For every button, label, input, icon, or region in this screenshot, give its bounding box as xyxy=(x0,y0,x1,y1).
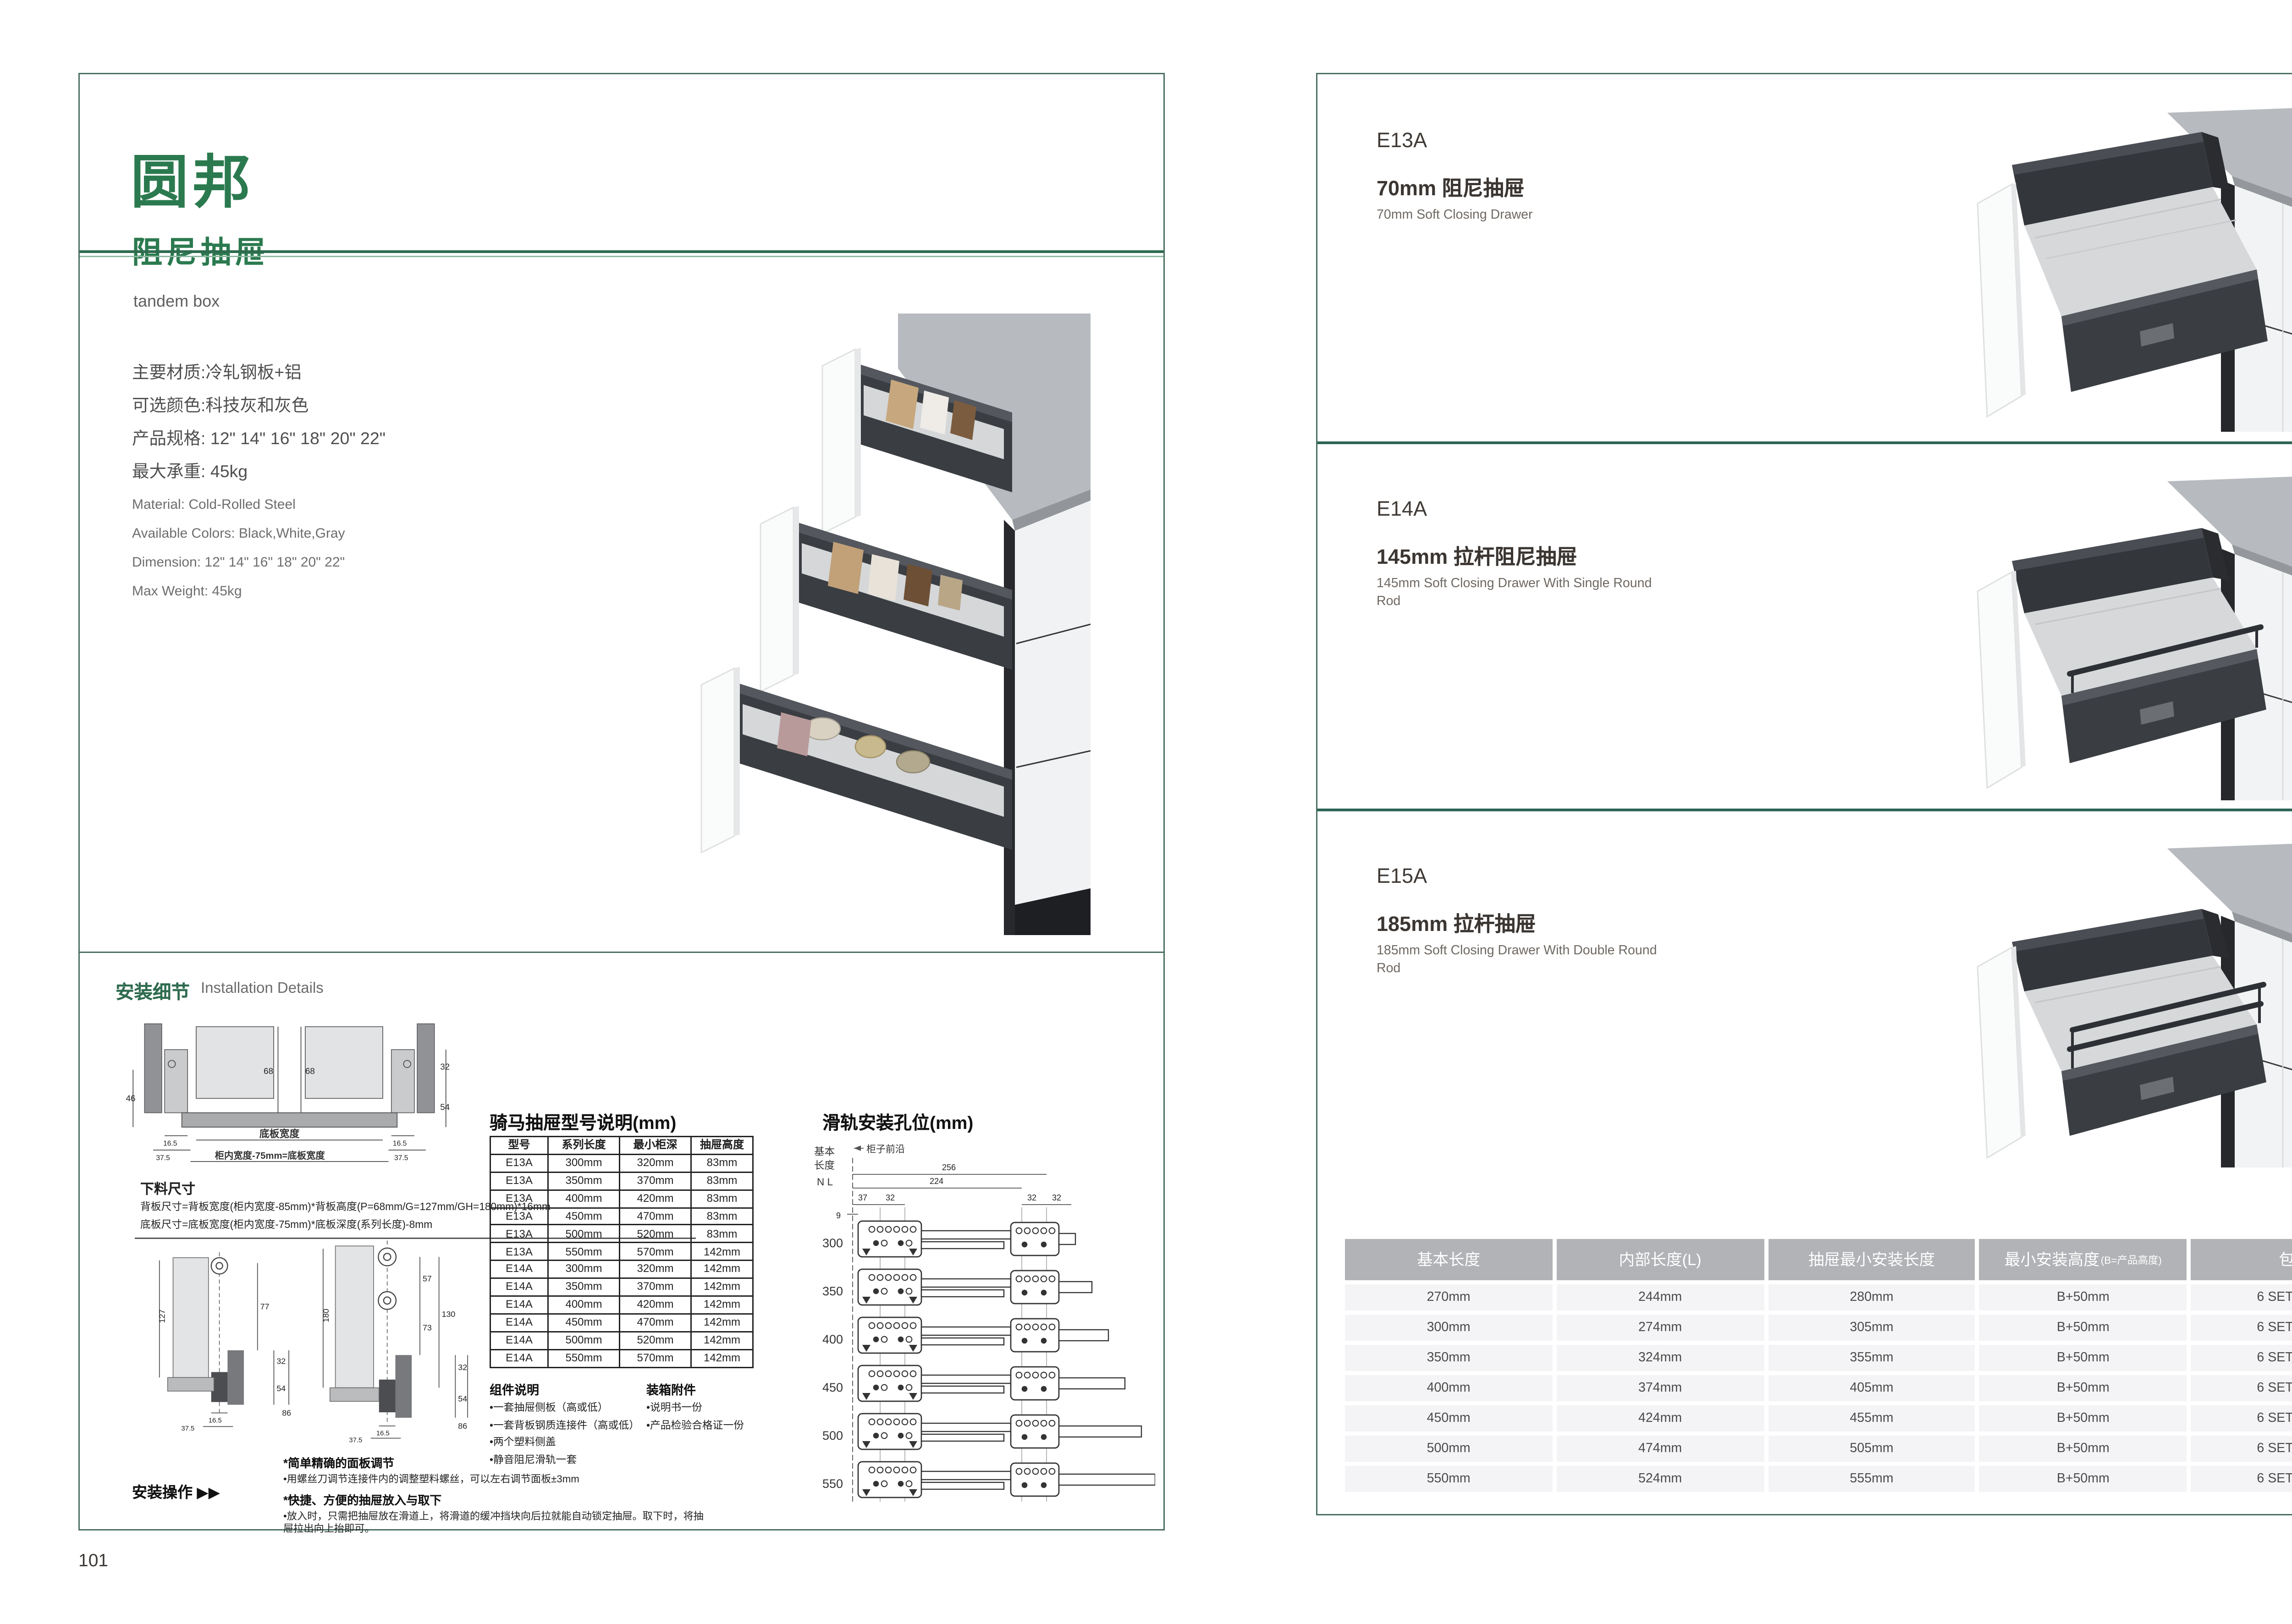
cell: 280mm xyxy=(1768,1284,1975,1310)
accessories-title: 装箱附件 xyxy=(646,1381,784,1398)
product-name-en: 145mm Soft Closing Drawer With Single Ro… xyxy=(1377,575,1672,611)
rail-length-300: 300 xyxy=(822,1236,843,1250)
specs-english: Material: Cold-Rolled Steel Available Co… xyxy=(132,491,345,606)
rail-length-500: 500 xyxy=(822,1429,843,1442)
table-row: E14A450mm470mm142mm xyxy=(490,1314,753,1332)
list-item: •一套抽屉侧板（高或低） xyxy=(490,1400,641,1416)
list-item: •产品检验合格证一份 xyxy=(646,1417,784,1433)
install-operation-label: 安装操作 ▶▶ xyxy=(132,1481,220,1503)
list-item: •说明书一份 xyxy=(646,1400,784,1416)
dim-86: 86 xyxy=(282,1408,291,1417)
install-title-en: Installation Details xyxy=(201,980,324,997)
cell: 6 SETC/TNB xyxy=(2191,1345,2292,1371)
col-header: 抽屉最小安装长度 xyxy=(1768,1239,1975,1280)
list-item: •静音阻尼滑轨一套 xyxy=(490,1452,641,1468)
rail-length-550: 550 xyxy=(822,1477,843,1491)
cell: 305mm xyxy=(1768,1315,1975,1341)
cell: 6 SETC/TNB xyxy=(2191,1466,2292,1492)
dim-54: 54 xyxy=(458,1394,467,1403)
cell: 450mm xyxy=(1345,1405,1552,1431)
side-diagram-180: 180 57 73 130 32 54 86 16.5 37.5 xyxy=(316,1240,473,1442)
spec-line: 最大承重: 45kg xyxy=(132,455,386,488)
dim-180: 180 xyxy=(321,1309,331,1322)
drawer-cabinet-photo xyxy=(616,314,1091,935)
dim-127: 127 xyxy=(158,1310,167,1323)
dim-86: 86 xyxy=(458,1421,467,1431)
dim-37-5-right: 37.5 xyxy=(394,1154,408,1162)
table-row: E13A300mm320mm83mm xyxy=(490,1154,753,1172)
dim-77: 77 xyxy=(260,1302,270,1311)
dim-16-5: 16.5 xyxy=(209,1417,222,1424)
product-section-e13a: E13A 70mm 阻尼抽屉 70mm Soft Closing Drawer xyxy=(1317,74,2292,440)
cell: 550mm xyxy=(1345,1466,1552,1492)
table-row: E14A400mm420mm142mm xyxy=(490,1296,753,1314)
cell: 405mm xyxy=(1768,1375,1975,1401)
cross-section-diagram: 68 68 46 32 54 16.5 16.5 37.5 37.5 底板宽度 … xyxy=(121,1007,458,1172)
cell: B+50mm xyxy=(1979,1345,2187,1371)
cell: 374mm xyxy=(1556,1375,1763,1401)
table-row: E13A450mm470mm83mm xyxy=(490,1207,753,1225)
product-model: E13A xyxy=(1377,129,1427,153)
note-body: •放入时，只需把抽屉放在滑道上，将滑道的缓冲挡块向后拉就能自动锁定抽屉。取下时，… xyxy=(283,1509,710,1536)
size-table: 基本长度 内部长度(L) 抽屉最小安装长度 最小安装高度(B=产品高度) 包装 … xyxy=(1345,1239,2292,1492)
cell: 6 SETC/TNB xyxy=(2191,1284,2292,1310)
cell: 324mm xyxy=(1556,1345,1763,1371)
product-model: E14A xyxy=(1377,498,1427,521)
inner-width-formula-label: 柜内宽度-75mm=底板宽度 xyxy=(215,1150,325,1161)
dim-16-5-right: 16.5 xyxy=(393,1140,407,1148)
catalog-page-right: E13A 70mm 阻尼抽屉 70mm Soft Closing Drawer xyxy=(1316,73,2292,1515)
product-section-e14a: E14A 145mm 拉杆阻尼抽屉 145mm Soft Closing Dra… xyxy=(1317,443,2292,809)
axis-label-jiben: 基本 xyxy=(814,1146,835,1157)
model-table: 型号 系列长度 最小柜深 抽屉高度 E13A300mm320mm83mm E13… xyxy=(490,1136,754,1368)
spec-line: Material: Cold-Rolled Steel xyxy=(132,491,345,520)
product-name-cn: 145mm 拉杆阻尼抽屉 xyxy=(1377,542,1577,571)
list-item: •两个塑料侧盖 xyxy=(490,1434,641,1450)
cutting-size-title: 下料尺寸 xyxy=(140,1177,195,1198)
cell: B+50mm xyxy=(1979,1284,2187,1310)
specs-chinese: 主要材质:冷轧钢板+铝 可选颜色:科技灰和灰色 产品规格: 12" 14" 16… xyxy=(132,356,386,488)
cell: 270mm xyxy=(1345,1284,1552,1310)
product-photo xyxy=(1936,473,2292,800)
header-divider xyxy=(80,250,1163,253)
cell: B+50mm xyxy=(1979,1315,2187,1341)
dim-16-5-left: 16.5 xyxy=(163,1140,177,1148)
cell: 6 SETC/TNB xyxy=(2191,1375,2292,1401)
cell: 474mm xyxy=(1556,1436,1763,1462)
dim-68-left: 68 xyxy=(264,1066,273,1076)
series-title-en: tandem box xyxy=(133,292,220,311)
table-row: E14A500mm520mm142mm xyxy=(490,1332,753,1349)
col-header: 系列长度 xyxy=(548,1137,620,1155)
dim-37-5: 37.5 xyxy=(349,1437,362,1442)
components-title: 组件说明 xyxy=(490,1381,641,1398)
cell: 6 SETC/TNB xyxy=(2191,1315,2292,1341)
model-table-title: 骑马抽屉型号说明(mm) xyxy=(490,1108,676,1134)
product-name-en: 185mm Soft Closing Drawer With Double Ro… xyxy=(1377,942,1672,978)
col-header: 包装 xyxy=(2191,1239,2292,1280)
rail-length-350: 350 xyxy=(822,1284,843,1298)
dim-73: 73 xyxy=(423,1323,432,1332)
spec-line: Dimension: 12" 14" 16" 18" 20" 22" xyxy=(132,549,345,578)
cell: 300mm xyxy=(1345,1315,1552,1341)
product-name-cn: 185mm 拉杆抽屉 xyxy=(1377,909,1536,938)
col-header: 型号 xyxy=(490,1137,548,1155)
cabinet-front-edge-label: 柜子前沿 xyxy=(866,1144,905,1155)
rail-length-450: 450 xyxy=(822,1381,843,1394)
dim-32: 32 xyxy=(886,1193,895,1202)
operation-arrows-icon: ▶▶ xyxy=(197,1485,220,1502)
dim-256: 256 xyxy=(942,1163,956,1172)
page-number-left: 101 xyxy=(78,1550,108,1570)
rail-diagram-title: 滑轨安装孔位(mm) xyxy=(822,1108,973,1134)
install-divider xyxy=(80,952,1163,953)
dim-130: 130 xyxy=(442,1310,456,1319)
spec-line: 可选颜色:科技灰和灰色 xyxy=(132,389,386,422)
catalog-page-left: 圆邦 阻尼抽屉 tandem box 主要材质:冷轧钢板+铝 可选颜色:科技灰和… xyxy=(78,73,1165,1530)
dim-54: 54 xyxy=(440,1102,450,1112)
table-row: E14A300mm320mm142mm xyxy=(490,1261,753,1278)
rail-length-400: 400 xyxy=(822,1332,843,1346)
accessories-list: 装箱附件 •说明书一份 •产品检验合格证一份 xyxy=(646,1381,784,1433)
cell: 355mm xyxy=(1768,1345,1975,1371)
dim-32: 32 xyxy=(440,1062,450,1072)
cell: B+50mm xyxy=(1979,1436,2187,1462)
cell: 350mm xyxy=(1345,1345,1552,1371)
product-section-e15a: E15A 185mm 拉杆抽屉 185mm Soft Closing Drawe… xyxy=(1317,810,2292,1176)
axis-label-nl: N L xyxy=(817,1176,833,1188)
catalog-spread: 圆邦 阻尼抽屉 tandem box 主要材质:冷轧钢板+铝 可选颜色:科技灰和… xyxy=(0,0,2292,1624)
bottom-panel-width-label: 底板宽度 xyxy=(259,1128,300,1140)
table-row: E14A550mm570mm142mm xyxy=(490,1349,753,1367)
cell: 274mm xyxy=(1556,1315,1763,1341)
operation-text: 安装操作 xyxy=(132,1485,193,1502)
install-title-cn: 安装细节 xyxy=(116,976,190,1004)
dim-16-5: 16.5 xyxy=(376,1430,390,1437)
brand-title: 圆邦 xyxy=(131,154,254,212)
cell: 500mm xyxy=(1345,1436,1552,1462)
dim-32: 32 xyxy=(458,1363,467,1372)
table-row: E13A500mm520mm83mm xyxy=(490,1225,753,1243)
note-body: •用螺丝刀调节连接件内的调整塑料螺丝，可以左右调节面板±3mm xyxy=(283,1473,710,1486)
dim-57: 57 xyxy=(423,1274,432,1283)
cell: 555mm xyxy=(1768,1466,1975,1492)
dim-37-5-left: 37.5 xyxy=(156,1154,170,1162)
col-header: 基本长度 xyxy=(1345,1239,1552,1280)
col-header: 最小安装高度(B=产品高度) xyxy=(1979,1239,2187,1280)
components-list: 组件说明 •一套抽屉侧板（高或低） •一套背板钢质连接件（高或低） •两个塑料侧… xyxy=(490,1381,641,1467)
dim-9: 9 xyxy=(836,1211,841,1220)
col-header: 抽屉高度 xyxy=(691,1137,753,1155)
spec-line: Available Colors: Black,White,Gray xyxy=(132,520,345,549)
cell: 6 SETC/TNB xyxy=(2191,1405,2292,1431)
dim-37: 37 xyxy=(858,1193,867,1202)
spec-line: 主要材质:冷轧钢板+铝 xyxy=(132,356,386,389)
cell: 505mm xyxy=(1768,1436,1975,1462)
axis-label-changdu: 长度 xyxy=(814,1160,835,1171)
cell: 6 SETC/TNB xyxy=(2191,1436,2292,1462)
product-name-en: 70mm Soft Closing Drawer xyxy=(1377,206,1672,224)
cell: 400mm xyxy=(1345,1375,1552,1401)
cell: B+50mm xyxy=(1979,1375,2187,1401)
list-item: •一套背板钢质连接件（高或低） xyxy=(490,1417,641,1433)
product-name-cn: 70mm 阻尼抽屉 xyxy=(1377,173,1525,202)
side-diagram-127: 127 77 32 54 86 16.5 37.5 xyxy=(151,1251,294,1433)
cell: B+50mm xyxy=(1979,1405,2187,1431)
table-row: E13A350mm370mm83mm xyxy=(490,1172,753,1190)
dim-46: 46 xyxy=(126,1094,136,1103)
cell: 455mm xyxy=(1768,1405,1975,1431)
dim-32: 32 xyxy=(1027,1193,1036,1202)
cell: B+50mm xyxy=(1979,1466,2187,1492)
product-photo xyxy=(1936,840,2292,1167)
table-row: E14A350mm370mm142mm xyxy=(490,1278,753,1296)
cell: 424mm xyxy=(1556,1405,1763,1431)
col-header: 最小柜深 xyxy=(620,1137,691,1155)
cell: 244mm xyxy=(1556,1284,1763,1310)
rail-hole-diagram: 基本 长度 N L 柜子前沿 256 224 37 32 9 32 32 xyxy=(811,1133,1155,1521)
table-row: E13A400mm420mm83mm xyxy=(490,1190,753,1208)
col-header: 内部长度(L) xyxy=(1556,1239,1763,1280)
product-photo xyxy=(1936,105,2292,432)
cell: 524mm xyxy=(1556,1466,1763,1492)
header-divider-light xyxy=(80,256,1163,257)
dim-32: 32 xyxy=(276,1357,286,1366)
dim-224: 224 xyxy=(930,1177,943,1186)
dim-68-right: 68 xyxy=(305,1066,315,1076)
spec-line: 产品规格: 12" 14" 16" 18" 20" 22" xyxy=(132,422,386,455)
product-model: E15A xyxy=(1377,865,1427,888)
dim-54: 54 xyxy=(276,1384,286,1393)
table-row: E13A550mm570mm142mm xyxy=(490,1243,753,1261)
spec-line: Max Weight: 45kg xyxy=(132,578,345,606)
note-heading: *快捷、方便的抽屉放入与取下 xyxy=(283,1492,710,1508)
dim-32: 32 xyxy=(1052,1193,1061,1202)
dim-37-5: 37.5 xyxy=(181,1425,194,1432)
